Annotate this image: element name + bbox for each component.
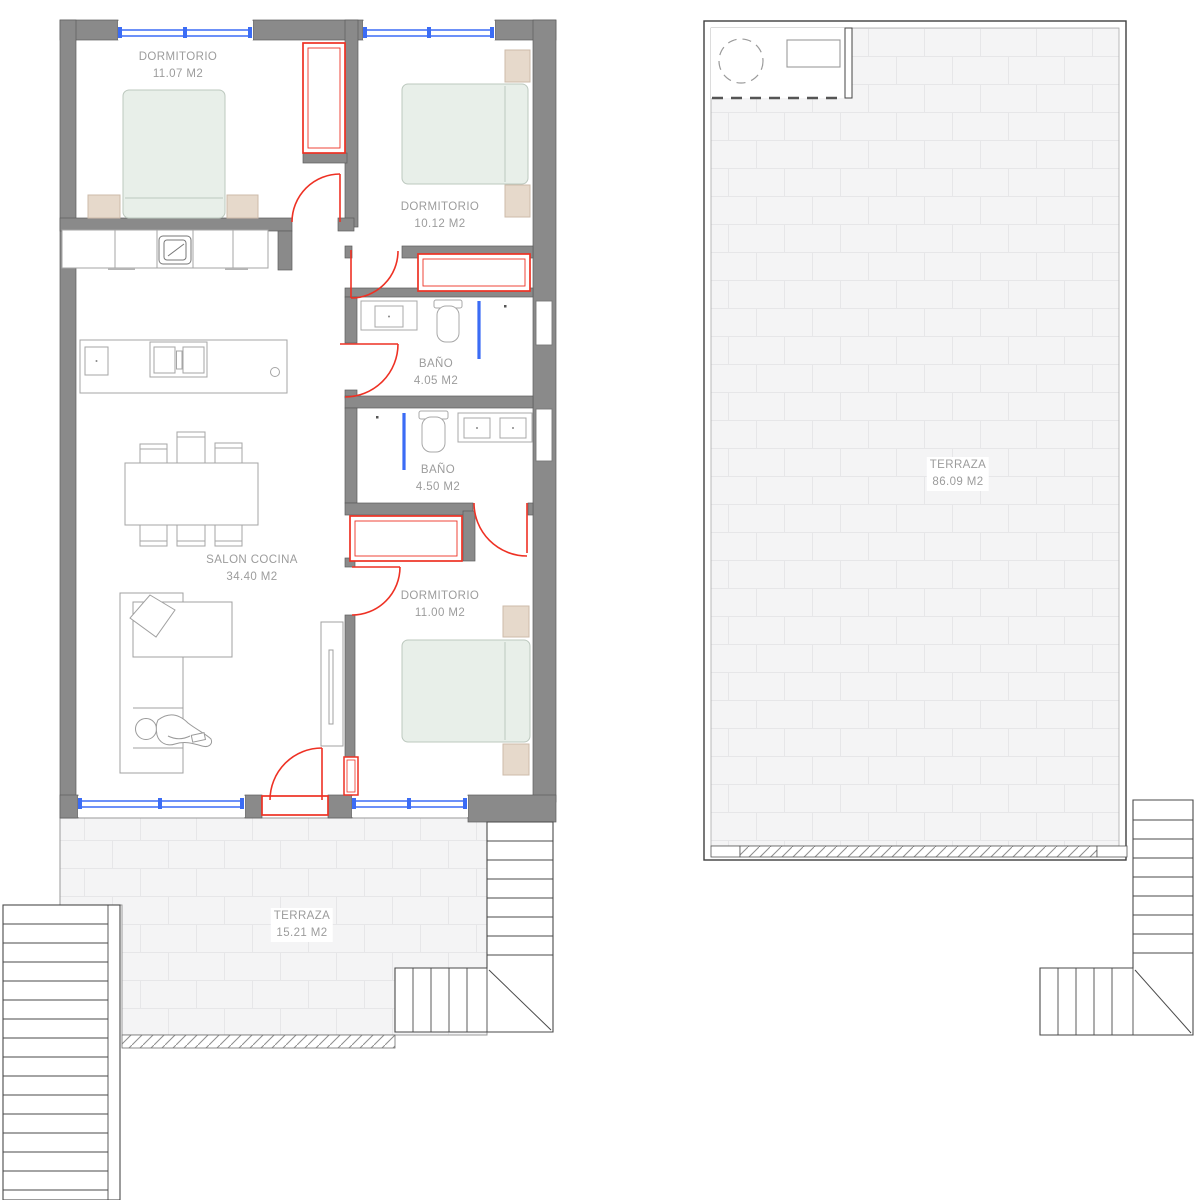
room-area: 11.07 M2 <box>136 66 221 83</box>
window-icon <box>78 796 245 817</box>
hatch-threshold-icon <box>740 846 1097 857</box>
wall <box>303 153 347 163</box>
stairs-exterior-left <box>3 905 120 1200</box>
nightstand-icon <box>505 50 530 82</box>
nightstand-icon <box>503 744 529 775</box>
wall <box>328 795 352 818</box>
threshold-cap <box>711 846 740 857</box>
dot-mark <box>376 416 379 419</box>
kitchen-island-icon <box>80 340 287 393</box>
threshold-cap <box>1097 846 1127 857</box>
room-label-dormitorio-1: DORMITORIO 11.07 M2 <box>136 49 221 83</box>
chair-icon <box>140 444 167 463</box>
room-label-terraza-upper: TERRAZA 86.09 M2 <box>927 457 989 491</box>
room-name: DORMITORIO <box>398 199 483 216</box>
double-bed-icon <box>123 90 225 218</box>
room-label-dormitorio-2: DORMITORIO 10.12 M2 <box>398 199 483 233</box>
door-swing-icon <box>474 503 527 556</box>
room-name: BAÑO <box>413 462 463 479</box>
wall <box>278 231 292 270</box>
wall <box>245 795 262 818</box>
double-sink-icon <box>458 413 532 442</box>
closet-wall <box>845 28 852 98</box>
room-label-bano-2: BAÑO 4.50 M2 <box>413 462 463 496</box>
hatch-threshold-icon <box>122 1035 395 1048</box>
wall <box>345 297 357 343</box>
chair-icon <box>215 443 242 463</box>
chair-icon <box>177 525 205 546</box>
door-swing-icon <box>270 748 322 800</box>
double-bed-icon <box>402 84 528 184</box>
toilet-icon <box>419 411 448 452</box>
wall <box>345 503 473 515</box>
window-icon <box>363 21 495 40</box>
room-name: DORMITORIO <box>136 49 221 66</box>
bedroom-2-furniture <box>402 50 530 217</box>
wall <box>463 511 475 561</box>
room-area: 4.50 M2 <box>413 479 463 496</box>
room-label-dormitorio-3: DORMITORIO 11.00 M2 <box>398 588 483 622</box>
wardrobe-icon <box>350 516 462 561</box>
nightstand-icon <box>505 185 530 217</box>
wall <box>345 396 533 408</box>
terrace-upper-plan <box>704 21 1127 860</box>
wall <box>60 20 76 818</box>
room-area: 34.40 M2 <box>203 569 301 586</box>
room-area: 11.00 M2 <box>398 605 483 622</box>
wall <box>468 795 556 822</box>
room-name: DORMITORIO <box>398 588 483 605</box>
room-area: 15.21 M2 <box>271 925 333 942</box>
terrace-door <box>262 796 328 815</box>
room-name: BAÑO <box>411 356 461 373</box>
room-area: 10.12 M2 <box>398 216 483 233</box>
floor-plan-drawing <box>0 0 1198 1200</box>
red-shaft-panel <box>344 757 358 795</box>
wardrobe-icon <box>303 43 345 153</box>
tv-unit-icon <box>321 622 343 746</box>
bathroom-1-fixtures <box>361 300 507 359</box>
room-label-salon-cocina: SALON COCINA 34.40 M2 <box>203 552 301 586</box>
bedroom-1-furniture <box>88 90 258 218</box>
terrace-upper-floor <box>711 28 1119 846</box>
double-bed-icon <box>402 640 530 742</box>
kitchen <box>62 230 287 393</box>
door-swing-icon <box>340 344 398 397</box>
hob-icon <box>159 236 191 264</box>
wall <box>528 503 533 515</box>
nightstand-icon <box>503 606 529 637</box>
living-area <box>120 593 343 773</box>
room-label-terraza-lower: TERRAZA 15.21 M2 <box>271 908 333 942</box>
door-swing-icon <box>352 567 400 615</box>
bedroom-3-furniture <box>402 606 530 775</box>
utility-closet <box>711 28 852 98</box>
wardrobe-icon <box>418 254 530 291</box>
wall <box>345 615 355 757</box>
vent-niche <box>536 409 552 461</box>
sofa-icon <box>120 593 232 773</box>
wall <box>345 20 358 227</box>
stairs-icon <box>3 905 120 1200</box>
wall <box>60 795 78 818</box>
chair-icon <box>215 525 242 546</box>
vent-niche <box>536 301 552 345</box>
room-name: TERRAZA <box>271 908 333 925</box>
room-name: TERRAZA <box>927 457 989 474</box>
toilet-icon <box>434 300 462 342</box>
chair-icon <box>140 525 167 546</box>
window-icon <box>118 21 253 40</box>
wall <box>60 218 292 231</box>
sink-icon <box>361 301 417 330</box>
room-area: 86.09 M2 <box>927 474 989 491</box>
nightstand-icon <box>88 195 120 218</box>
room-name: SALON COCINA <box>203 552 301 569</box>
ac-unit-icon <box>787 40 840 67</box>
floor-plan-canvas: DORMITORIO 11.07 M2 DORMITORIO 10.12 M2 … <box>0 0 1198 1200</box>
room-label-bano-1: BAÑO 4.05 M2 <box>411 356 461 390</box>
wall <box>345 408 357 503</box>
window-icon <box>352 796 468 817</box>
dining-set <box>125 432 258 546</box>
room-area: 4.05 M2 <box>411 373 461 390</box>
nightstand-icon <box>227 195 258 218</box>
dining-table-icon <box>125 463 258 525</box>
door-swing-icon <box>292 174 340 222</box>
dot-mark <box>504 305 507 308</box>
